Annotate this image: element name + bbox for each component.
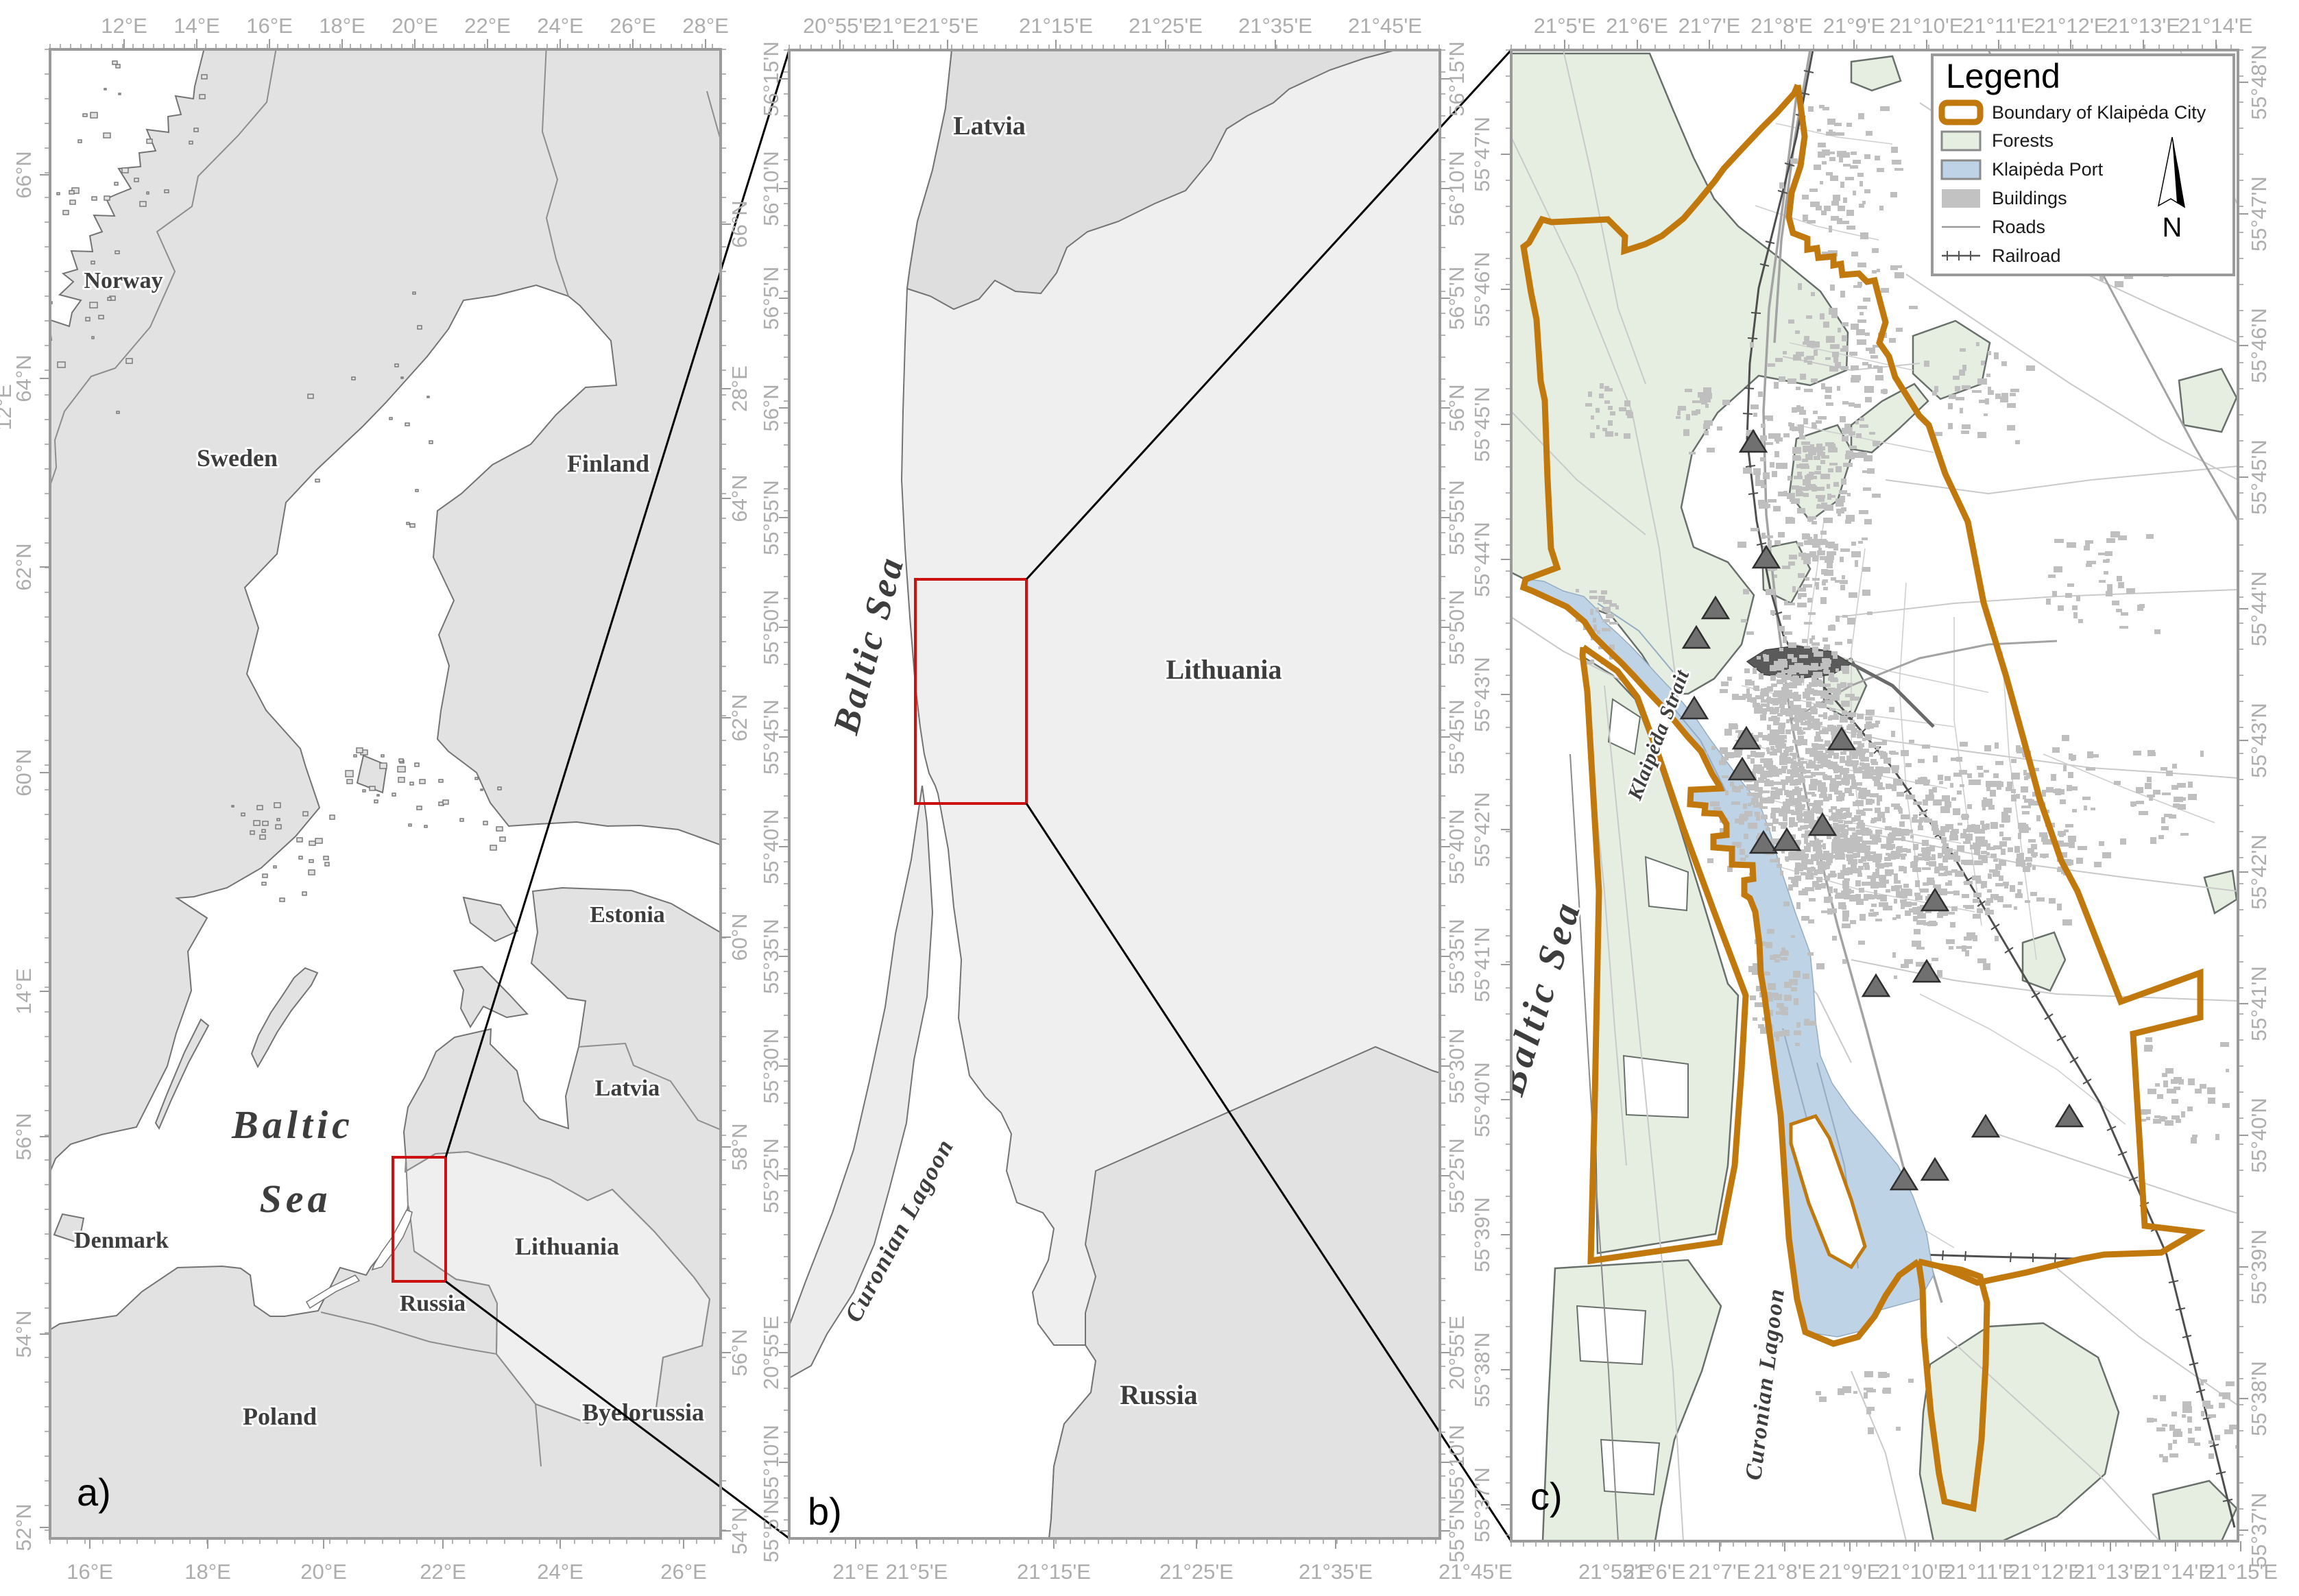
svg-text:54°N: 54°N (727, 1507, 751, 1554)
svg-text:55°25'N: 55°25'N (759, 1138, 783, 1213)
svg-text:66°N: 66°N (12, 151, 36, 198)
svg-text:55°30'N: 55°30'N (1445, 1028, 1469, 1104)
svg-text:Denmark: Denmark (74, 1228, 169, 1253)
svg-text:21°8'E: 21°8'E (1754, 1560, 1816, 1584)
svg-text:Russia: Russia (400, 1291, 466, 1316)
svg-text:21°7'E: 21°7'E (1689, 1560, 1751, 1584)
svg-text:Railroad: Railroad (1992, 245, 2061, 266)
svg-text:21°12'E: 21°12'E (2008, 1560, 2082, 1584)
svg-text:55°40'N: 55°40'N (1470, 1062, 1494, 1137)
svg-text:20°55'E: 20°55'E (759, 1316, 783, 1390)
svg-text:55°5'N: 55°5'N (1445, 1499, 1469, 1562)
svg-text:Sea: Sea (260, 1176, 332, 1221)
svg-text:56°N: 56°N (1445, 384, 1469, 431)
svg-text:14°E: 14°E (173, 14, 220, 38)
svg-text:Forests: Forests (1992, 130, 2054, 151)
svg-text:55°37'N: 55°37'N (1470, 1467, 1494, 1543)
svg-text:21°45'E: 21°45'E (1439, 1560, 1513, 1584)
svg-text:55°35'N: 55°35'N (1445, 919, 1469, 994)
svg-text:21°7'E: 21°7'E (1678, 14, 1741, 38)
svg-text:Estonia: Estonia (590, 902, 665, 928)
svg-text:52°N: 52°N (12, 1503, 36, 1551)
svg-text:Boundary of Klaipėda City: Boundary of Klaipėda City (1992, 102, 2206, 123)
svg-text:N: N (2163, 213, 2182, 243)
svg-text:55°35'N: 55°35'N (759, 919, 783, 994)
svg-text:55°43'N: 55°43'N (2247, 703, 2271, 778)
svg-text:21°8'E: 21°8'E (1750, 14, 1813, 38)
svg-text:16°E: 16°E (67, 1560, 113, 1584)
svg-text:28°E: 28°E (727, 365, 751, 412)
svg-text:56°10'N: 56°10'N (759, 151, 783, 226)
svg-text:21°11'E: 21°11'E (1944, 1560, 2017, 1584)
svg-text:Sweden: Sweden (197, 444, 278, 472)
svg-text:56°15'N: 56°15'N (759, 41, 783, 117)
svg-text:66°N: 66°N (727, 200, 751, 247)
svg-text:55°43'N: 55°43'N (1470, 657, 1494, 732)
svg-text:55°40'N: 55°40'N (2247, 1098, 2271, 1173)
svg-text:Finland: Finland (567, 450, 649, 477)
svg-text:55°47'N: 55°47'N (1470, 117, 1494, 192)
svg-text:20°E: 20°E (392, 14, 438, 38)
svg-text:21°6'E: 21°6'E (1606, 14, 1668, 38)
svg-text:55°39'N: 55°39'N (2247, 1229, 2271, 1305)
svg-text:55°46'N: 55°46'N (1470, 252, 1494, 327)
svg-text:55°40'N: 55°40'N (1445, 809, 1469, 884)
svg-text:21°9'E: 21°9'E (1823, 14, 1886, 38)
svg-text:56°5'N: 56°5'N (759, 267, 783, 330)
svg-text:Baltic: Baltic (231, 1102, 354, 1147)
svg-text:21°6'E: 21°6'E (1624, 1560, 1686, 1584)
svg-text:c): c) (1530, 1475, 1563, 1518)
svg-text:55°30'N: 55°30'N (759, 1028, 783, 1104)
svg-text:55°10'N: 55°10'N (759, 1425, 783, 1500)
svg-text:55°25'N: 55°25'N (1445, 1138, 1469, 1213)
svg-text:56°N: 56°N (12, 1113, 36, 1160)
svg-text:58°N: 58°N (727, 1123, 751, 1170)
svg-text:Roads: Roads (1992, 217, 2045, 237)
svg-text:22°E: 22°E (420, 1560, 466, 1584)
svg-text:55°48'N: 55°48'N (2247, 45, 2271, 120)
svg-text:26°E: 26°E (660, 1560, 707, 1584)
svg-text:12°E: 12°E (0, 384, 16, 431)
svg-text:Buildings: Buildings (1992, 188, 2067, 208)
svg-text:64°N: 64°N (727, 474, 751, 522)
svg-text:55°50'N: 55°50'N (759, 590, 783, 665)
svg-text:16°E: 16°E (246, 14, 293, 38)
svg-text:55°55'N: 55°55'N (759, 480, 783, 555)
svg-text:55°50'N: 55°50'N (1445, 590, 1469, 665)
svg-text:24°E: 24°E (537, 1560, 583, 1584)
svg-text:Lithuania: Lithuania (1166, 654, 1282, 685)
svg-text:21°10'E: 21°10'E (1878, 1560, 1952, 1584)
svg-text:Klaipėda Port: Klaipėda Port (1992, 159, 2104, 180)
svg-text:22°E: 22°E (464, 14, 511, 38)
svg-text:55°45'N: 55°45'N (759, 699, 783, 775)
svg-text:21°25'E: 21°25'E (1129, 14, 1203, 38)
svg-text:12°E: 12°E (101, 14, 147, 38)
svg-text:55°37'N: 55°37'N (2247, 1492, 2271, 1568)
svg-text:21°10'E: 21°10'E (1890, 14, 1964, 38)
svg-text:20°E: 20°E (300, 1560, 347, 1584)
svg-text:18°E: 18°E (184, 1560, 231, 1584)
svg-text:21°45'E: 21°45'E (1348, 14, 1422, 38)
svg-text:24°E: 24°E (537, 14, 583, 38)
svg-text:21°35'E: 21°35'E (1238, 14, 1312, 38)
svg-text:Poland: Poland (243, 1403, 317, 1430)
svg-text:26°E: 26°E (610, 14, 656, 38)
svg-text:55°45'N: 55°45'N (1470, 387, 1494, 462)
svg-text:55°41'N: 55°41'N (1470, 927, 1494, 1002)
svg-text:21°9'E: 21°9'E (1819, 1560, 1881, 1584)
svg-text:55°5'N: 55°5'N (759, 1499, 783, 1562)
svg-text:21°5'E: 21°5'E (1534, 14, 1596, 38)
svg-text:55°44'N: 55°44'N (1470, 522, 1494, 597)
svg-text:55°42'N: 55°42'N (1470, 792, 1494, 867)
svg-text:55°38'N: 55°38'N (2247, 1361, 2271, 1436)
svg-text:21°15'E: 21°15'E (1017, 1560, 1091, 1584)
svg-text:60°N: 60°N (727, 913, 751, 960)
svg-text:55°45'N: 55°45'N (1445, 699, 1469, 775)
svg-text:21°5'E: 21°5'E (886, 1560, 948, 1584)
svg-text:21°12'E: 21°12'E (2034, 14, 2108, 38)
svg-text:21°14'E: 21°14'E (2179, 14, 2253, 38)
svg-text:21°11'E: 21°11'E (1962, 14, 2035, 38)
svg-text:55°45'N: 55°45'N (2247, 439, 2271, 515)
svg-text:55°46'N: 55°46'N (2247, 308, 2271, 383)
svg-text:56°N: 56°N (759, 384, 783, 431)
svg-text:21°13'E: 21°13'E (2073, 1560, 2147, 1584)
svg-text:55°39'N: 55°39'N (1470, 1197, 1494, 1272)
svg-text:Latvia: Latvia (953, 112, 1026, 141)
svg-text:Latvia: Latvia (595, 1076, 660, 1101)
svg-text:Legend: Legend (1946, 57, 2060, 95)
svg-text:b): b) (808, 1490, 842, 1533)
svg-text:a): a) (77, 1471, 111, 1514)
svg-text:56°N: 56°N (727, 1329, 751, 1376)
svg-text:21°E: 21°E (832, 1560, 879, 1584)
svg-text:21°13'E: 21°13'E (2106, 14, 2180, 38)
svg-text:Russia: Russia (1120, 1379, 1197, 1410)
svg-text:18°E: 18°E (319, 14, 365, 38)
svg-text:20°55'E: 20°55'E (1445, 1316, 1469, 1390)
svg-text:14°E: 14°E (12, 968, 36, 1015)
svg-text:55°41'N: 55°41'N (2247, 966, 2271, 1041)
svg-text:60°N: 60°N (12, 749, 36, 796)
svg-text:55°55'N: 55°55'N (1445, 480, 1469, 555)
svg-text:56°10'N: 56°10'N (1445, 151, 1469, 226)
svg-text:56°5'N: 56°5'N (1445, 267, 1469, 330)
svg-text:Byelorussia: Byelorussia (582, 1399, 704, 1426)
svg-text:55°40'N: 55°40'N (759, 809, 783, 884)
svg-text:Lithuania: Lithuania (515, 1233, 619, 1260)
svg-text:62°N: 62°N (12, 543, 36, 590)
svg-text:Norway: Norway (84, 268, 163, 293)
svg-text:55°47'N: 55°47'N (2247, 176, 2271, 252)
svg-text:55°10'N: 55°10'N (1445, 1425, 1469, 1500)
svg-text:55°38'N: 55°38'N (1470, 1332, 1494, 1407)
svg-text:21°25'E: 21°25'E (1159, 1560, 1233, 1584)
svg-text:28°E: 28°E (682, 14, 729, 38)
svg-text:21°5'E: 21°5'E (917, 14, 979, 38)
svg-text:55°42'N: 55°42'N (2247, 834, 2271, 910)
svg-text:54°N: 54°N (12, 1310, 36, 1357)
svg-text:21°15'E: 21°15'E (1019, 14, 1093, 38)
svg-text:55°44'N: 55°44'N (2247, 571, 2271, 646)
svg-text:21°E: 21°E (870, 14, 917, 38)
svg-text:62°N: 62°N (727, 694, 751, 741)
svg-text:21°14'E: 21°14'E (2139, 1560, 2213, 1584)
svg-text:20°55'E: 20°55'E (803, 14, 877, 38)
svg-text:21°35'E: 21°35'E (1299, 1560, 1373, 1584)
svg-text:56°15'N: 56°15'N (1445, 41, 1469, 117)
